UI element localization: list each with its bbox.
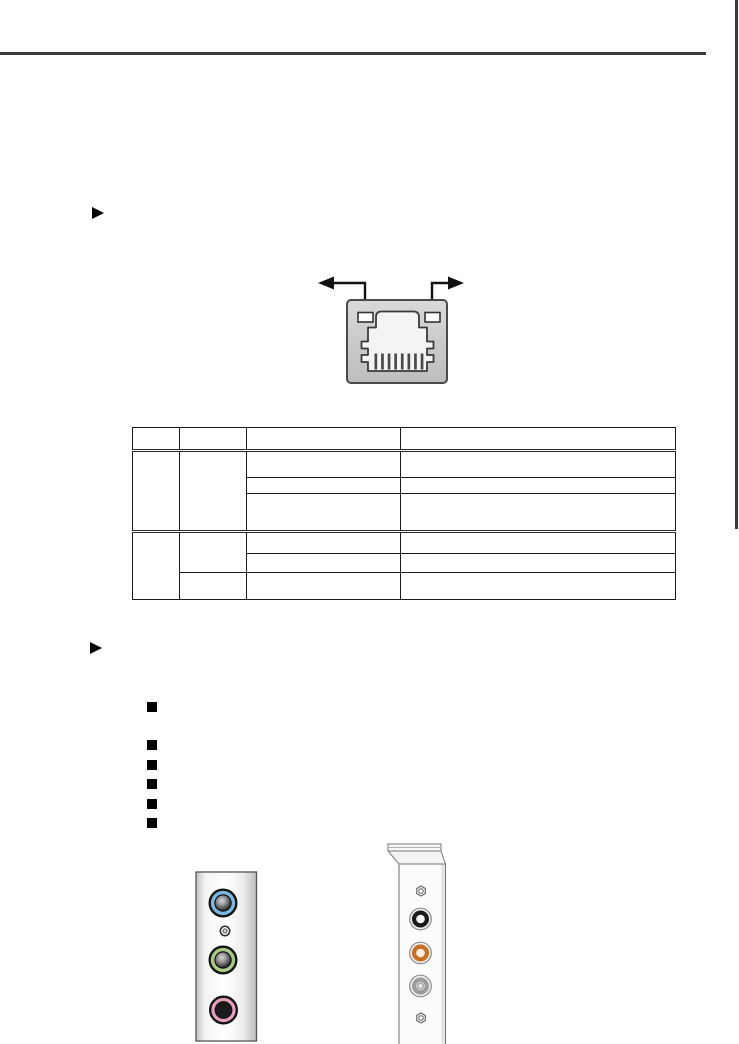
- table-cell: [401, 573, 676, 600]
- black-jack-icon: [410, 908, 432, 930]
- table-header-row: [133, 428, 676, 451]
- bracket-shoulder: [388, 851, 446, 864]
- table-row: [133, 531, 676, 554]
- table-cell: [401, 450, 676, 477]
- table-cell: [133, 531, 180, 599]
- pink-jack-icon: [210, 997, 237, 1024]
- list-bullet-icon: [147, 702, 157, 712]
- list-bullet-icon: [147, 740, 157, 750]
- table-cell: [180, 450, 247, 531]
- list-bullet-icon: [147, 799, 157, 809]
- top-rule: [0, 52, 706, 55]
- table-cell: [401, 494, 676, 531]
- list-bullet-icon: [147, 760, 157, 770]
- table-header-cell: [180, 428, 247, 451]
- hex-screw-icon: [417, 1013, 426, 1023]
- table-cell: [247, 477, 401, 494]
- table-cell: [180, 573, 247, 600]
- table-cell: [247, 494, 401, 531]
- lan-port-diagram: [300, 270, 480, 388]
- section-bullet-triangle-icon: [90, 642, 102, 654]
- blue-jack-icon: [210, 890, 237, 917]
- orange-jack-icon: [410, 942, 432, 964]
- hex-screw-icon: [417, 886, 426, 896]
- audio-panel-left-diagram: [190, 866, 262, 1044]
- list-bullet-icon: [147, 818, 157, 828]
- led-description-table: [132, 427, 676, 600]
- green-jack-icon: [210, 947, 237, 974]
- table-cell: [247, 554, 401, 573]
- table-row: [133, 573, 676, 600]
- lan-led-right: [425, 313, 440, 323]
- list-bullet-icon: [147, 779, 157, 789]
- table-cell: [401, 531, 676, 554]
- left-arrowhead-icon: [318, 277, 334, 290]
- bracket-edge-shade: [441, 865, 445, 1044]
- table-header-cell: [133, 428, 180, 451]
- table-cell: [180, 531, 247, 572]
- table-header-cell: [247, 428, 401, 451]
- section-bullet-triangle-icon: [92, 207, 104, 219]
- gray-jack-icon: [410, 975, 432, 997]
- lan-led-left: [358, 313, 373, 323]
- table-cell: [401, 554, 676, 573]
- table-cell: [247, 573, 401, 600]
- table-cell: [401, 477, 676, 494]
- table-row: [133, 450, 676, 477]
- screw-hole-icon: [220, 926, 229, 935]
- table-cell: [133, 450, 180, 531]
- table-cell: [247, 531, 401, 554]
- audio-bracket-right-diagram: [384, 841, 450, 1044]
- right-arrowhead-icon: [448, 277, 464, 290]
- page-edge-tab: [735, 0, 738, 529]
- table-cell: [247, 450, 401, 477]
- table-header-cell: [401, 428, 676, 451]
- manual-page: [0, 0, 739, 1044]
